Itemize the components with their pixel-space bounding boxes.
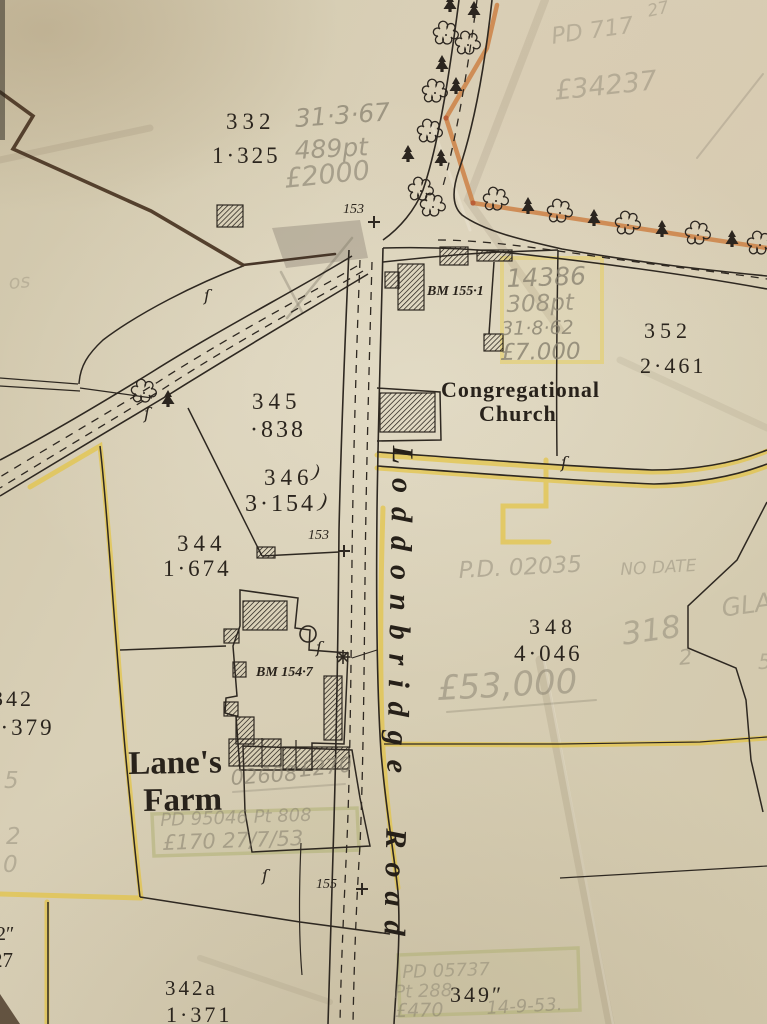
label-edge-27: 27 (0, 950, 13, 971)
label-pencil-02608: 02608 (230, 763, 298, 789)
label-pencil-170: £170 27/7/53 (162, 828, 304, 854)
label-church-name-line2: Church (479, 403, 557, 425)
label-road-number-155: 155 (316, 878, 337, 892)
label-pencil-gla: GLA (720, 589, 767, 621)
label-church-name-line1: Congregational (441, 379, 600, 401)
label-pencil-pd05737: PD 05737 (402, 961, 490, 982)
label-edge-2in: 2″ (0, 924, 14, 944)
label-parcel-346-area: 3·154 (245, 492, 316, 516)
label-road-number-153-mid: 153 (308, 529, 329, 543)
label-section-mark-4: ſ (316, 640, 322, 656)
label-parcel-345-area: ·838 (250, 418, 306, 442)
label-pencil-318-sub: 2 (678, 647, 693, 669)
labels-layer: 3321·325345·8383463·154))3441·6743484·04… (0, 0, 767, 1024)
label-road-number-153-top: 153 (343, 203, 364, 217)
label-parcel-332-area: 1·325 (212, 144, 281, 167)
label-pencil-2000: £2000 (283, 157, 371, 193)
label-parcel-352: 352 (644, 320, 692, 342)
label-brace-2: ) (318, 490, 329, 512)
label-pencil-date-3167: 31·3·67 (294, 99, 391, 131)
label-pencil-pd717: PD 717 (550, 14, 635, 48)
label-section-mark-5: ſ (262, 868, 268, 884)
label-pencil-5-right: 5 (758, 652, 767, 673)
label-pencil-0-left: 0 (3, 854, 18, 877)
label-parcel-345: 345 (252, 390, 302, 413)
label-pencil-308pt: 308pt (506, 292, 574, 317)
label-pencil-318: 318 (620, 612, 683, 651)
label-pencil-scribble: os (8, 272, 31, 293)
label-pencil-5-left: 5 (4, 770, 19, 793)
label-section-mark-2: ſ (144, 406, 150, 422)
label-parcel-342-area: 3·379 (0, 716, 55, 739)
label-pencil-270: £270 (298, 754, 353, 780)
label-pencil-53000: £53,000 (436, 665, 578, 706)
label-parcel-342a-area: 1·371 (166, 1004, 232, 1024)
label-benchmark-154-7: BM 154·7 (256, 666, 313, 680)
label-farm-name-line1: Lane's (128, 746, 222, 781)
label-pencil-no-date: NO DATE (620, 558, 697, 579)
label-pencil-34237: £34237 (553, 67, 658, 105)
label-pencil-7000: £7.000 (500, 341, 581, 365)
label-benchmark-155-1: BM 155·1 (427, 285, 484, 299)
label-section-mark-3: ſ (561, 455, 567, 471)
label-pencil-pd02035: P.D. 02035 (458, 554, 583, 583)
label-parcel-344: 344 (177, 532, 227, 555)
label-parcel-332: 332 (226, 110, 276, 133)
label-road-name: Loddonbridge Road (378, 445, 417, 949)
label-parcel-348: 348 (529, 616, 577, 638)
label-pencil-14953: 14-9-53. (486, 996, 563, 1018)
label-parcel-342: 342 (0, 688, 34, 710)
label-parcel-352-area: 2·461 (640, 355, 706, 377)
label-pencil-2-left: 2 (6, 826, 21, 849)
map-sheet: Scanned sheet of an Ordnance Survey styl… (0, 0, 767, 1024)
label-pencil-470: £470 (395, 1001, 444, 1021)
label-pencil-date-31862: 31·8·62 (501, 319, 574, 339)
label-pencil-14386: 14386 (506, 263, 586, 291)
label-parcel-344-area: 1·674 (163, 557, 232, 580)
label-pencil-corner-27: 27 (646, 0, 671, 21)
label-parcel-346: 346 (264, 466, 314, 489)
label-parcel-342a: 342a (165, 978, 218, 999)
label-section-mark-1: ſ (204, 288, 210, 304)
